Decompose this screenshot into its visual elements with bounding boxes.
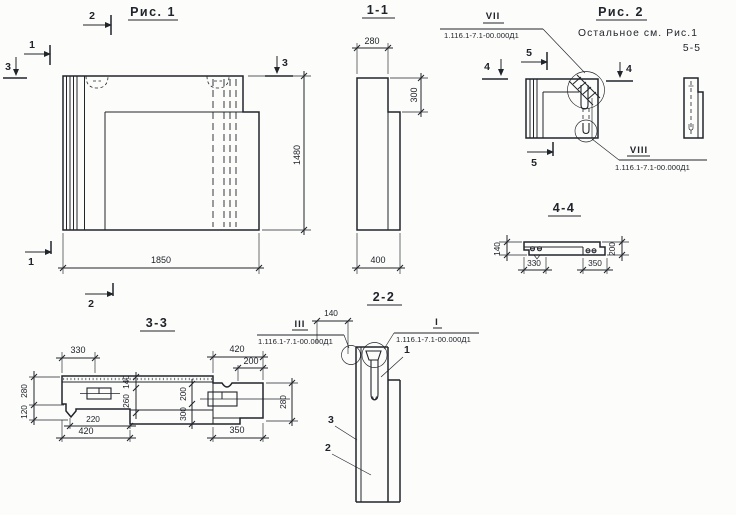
- detail-ref-viii: VIII 1.116.1-7.1-00.000Д1: [592, 139, 707, 172]
- cut-marker-1-top: 1: [24, 39, 51, 65]
- fig2-view: Рис. 2 Остальное см. Рис.1 5-5 VII 1.116…: [440, 5, 707, 172]
- dim-300-label: 300: [409, 87, 419, 102]
- cut-marker-4-right-label: 4: [626, 63, 632, 75]
- dim-1480-label: 1480: [292, 145, 302, 165]
- detail-circle-vii: [568, 72, 605, 109]
- dim-33-120-left-label: 120: [19, 405, 29, 419]
- part-leader-3: 3: [328, 414, 357, 440]
- dim-33-right-280: 280: [266, 378, 298, 426]
- fig2-title: Рис. 2: [598, 5, 644, 19]
- cut-marker-5-bottom: 5: [527, 142, 554, 169]
- section-4-4-anchor-marks: [530, 247, 597, 253]
- dim-44-200-label: 200: [607, 242, 617, 256]
- fig1-view: Рис. 1 2 1 3 3: [3, 5, 311, 310]
- cut-marker-2-top-label: 2: [89, 10, 95, 22]
- cut-marker-1-top-label: 1: [29, 39, 35, 51]
- dim-280-label: 280: [364, 36, 379, 46]
- cut-marker-1-bottom-label: 1: [28, 256, 34, 268]
- dim-44-350: 350: [577, 258, 613, 274]
- dim-33-mid2-chain: 200 300: [178, 379, 195, 429]
- section-1-1-outline: [357, 78, 400, 230]
- detail-ref-viii-doc: 1.116.1-7.1-00.000Д1: [615, 163, 690, 172]
- fig1-detail-arcs: [86, 76, 229, 88]
- cut-marker-3-right-label: 3: [282, 57, 288, 69]
- dim-44-330-label: 330: [527, 258, 541, 268]
- detail-ref-i: I 1.116.1-7.1-00.000Д1: [384, 317, 479, 349]
- detail-ref-vii-label: VII: [486, 11, 501, 22]
- dim-33-260-label: 260: [121, 394, 131, 408]
- dim-33-420-top-label: 420: [229, 344, 244, 354]
- dim-33-left-chain: 280 120: [19, 371, 68, 425]
- lifting-loop: [366, 351, 381, 400]
- section-2-2: 2-2 III 1.116.1-7.1-00.000Д1 I 1.116.1-7…: [257, 290, 479, 502]
- dim-33-350-label: 350: [229, 425, 244, 435]
- dim-33-280-left-label: 280: [19, 384, 29, 398]
- section-2-2-title: 2-2: [373, 290, 396, 304]
- dim-1480: 1480: [248, 71, 311, 235]
- fig1-title: Рис. 1: [130, 5, 176, 19]
- dim-33-200-mid-label: 200: [178, 387, 188, 401]
- drawing-canvas: Рис. 1 2 1 3 3: [0, 0, 736, 515]
- dim-33-280-right-label: 280: [278, 395, 288, 409]
- dim-33-330-label: 330: [70, 345, 85, 355]
- detail-ref-vii-doc: 1.116.1-7.1-00.000Д1: [444, 31, 519, 40]
- section-3-3-title: 3-3: [146, 316, 169, 330]
- detail-ref-i-doc: 1.116.1-7.1-00.000Д1: [396, 335, 471, 344]
- part-3-label: 3: [328, 414, 334, 426]
- cut-marker-4-right: 4: [606, 62, 633, 81]
- dim-33-330: 330: [56, 345, 100, 373]
- detail-ref-vii: VII 1.116.1-7.1-00.000Д1: [440, 11, 585, 73]
- cut-marker-3-right: 3: [265, 56, 293, 76]
- section-3-3: 3-3 330 420: [19, 316, 298, 442]
- dim-33-350: 350: [207, 423, 269, 442]
- fig1-rib-lines: [67, 76, 85, 230]
- dim-280: 280: [352, 36, 393, 74]
- fig2-note: Остальное см. Рис.1: [578, 28, 698, 39]
- part-1-label: 1: [404, 344, 410, 356]
- dim-400: 400: [352, 233, 405, 274]
- dim-33-300-mid-label: 300: [178, 407, 188, 421]
- dim-44-200: 200: [602, 236, 629, 261]
- cut-marker-4-left: 4: [482, 59, 508, 79]
- cut-marker-4-left-label: 4: [484, 61, 490, 73]
- section-1-1: 1-1 280 300 400: [352, 3, 428, 274]
- dim-1850-label: 1850: [151, 255, 171, 265]
- dim-33-140-label: 140: [121, 375, 131, 389]
- cut-marker-5-top: 5: [521, 47, 548, 70]
- fig2-slot-lower: [583, 123, 589, 134]
- dim-44-140: 140: [492, 235, 527, 261]
- section-4-4-outline: [524, 242, 605, 255]
- dim-33-420-top: 420: [207, 344, 268, 380]
- section-4-4: 4-4 140 200 330: [492, 201, 629, 274]
- fig2-rib-lines: [530, 79, 537, 138]
- section-1-1-title: 1-1: [367, 3, 390, 17]
- section-4-4-title: 4-4: [553, 201, 576, 215]
- drawing-sheet: Рис. 1 2 1 3 3: [0, 0, 736, 515]
- embedded-plate-left: [80, 388, 120, 399]
- detail-ref-viii-label: VIII: [630, 145, 648, 156]
- dim-33-220-label: 220: [86, 414, 100, 424]
- cut-marker-2-bottom-label: 2: [88, 298, 94, 310]
- cut-marker-5-top-label: 5: [526, 47, 532, 59]
- dim-400-label: 400: [370, 255, 385, 265]
- dim-33-420-bottom-label: 420: [78, 426, 93, 436]
- dim-300: 300: [390, 73, 428, 117]
- dim-33-220: 220: [64, 414, 136, 429]
- cut-marker-1-bottom: 1: [25, 241, 52, 268]
- dim-44-330: 330: [518, 257, 552, 274]
- detail-ref-iii-label: III: [295, 319, 306, 330]
- dim-44-350-label: 350: [588, 258, 602, 268]
- dim-1850: 1850: [58, 233, 264, 274]
- cut-marker-2-bottom: 2: [85, 283, 114, 310]
- fig1-hidden-lines: [213, 79, 236, 227]
- dim-33-200-top-label: 200: [243, 356, 258, 366]
- dim-22-140: 140: [312, 308, 353, 354]
- part-leader-2: 2: [325, 442, 371, 475]
- cut-marker-5-bottom-label: 5: [531, 157, 537, 169]
- view-5-5: [684, 78, 703, 138]
- dim-22-140-label: 140: [324, 308, 338, 318]
- fig2-note-sections: 5-5: [683, 43, 701, 54]
- detail-ref-i-label: I: [435, 317, 439, 328]
- cut-marker-2-top: 2: [83, 10, 112, 35]
- detail-ref-iii: III 1.116.1-7.1-00.000Д1: [257, 319, 349, 348]
- detail-ref-iii-doc: 1.116.1-7.1-00.000Д1: [258, 337, 333, 346]
- cut-marker-3-left: 3: [3, 57, 27, 78]
- cut-marker-3-left-label: 3: [5, 61, 11, 73]
- part-2-label: 2: [325, 442, 331, 454]
- dim-44-140-label: 140: [492, 242, 502, 256]
- detail-circle-iii: [342, 346, 361, 365]
